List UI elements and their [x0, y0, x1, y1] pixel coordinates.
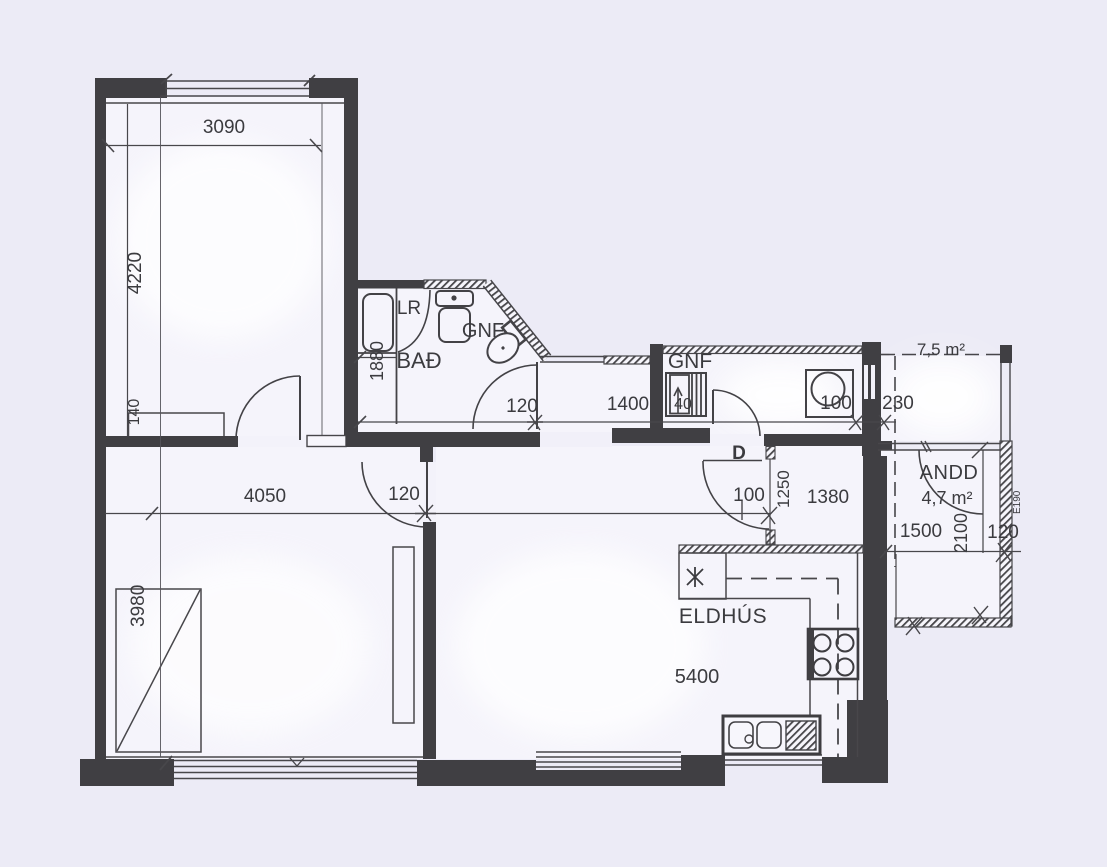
svg-text:120: 120 [987, 522, 1019, 543]
svg-text:ELDHÚS: ELDHÚS [679, 605, 767, 628]
svg-text:4220: 4220 [125, 252, 146, 294]
svg-text:ANDD: ANDD [920, 462, 979, 484]
svg-text:140: 140 [126, 399, 143, 426]
svg-text:5400: 5400 [675, 666, 720, 688]
svg-text:1880: 1880 [367, 341, 387, 381]
svg-text:1400: 1400 [607, 394, 649, 415]
svg-text:GNF: GNF [668, 350, 712, 373]
svg-text:BAÐ: BAÐ [396, 348, 441, 373]
svg-text:230: 230 [882, 393, 914, 414]
svg-text:4,7 m²: 4,7 m² [921, 488, 972, 508]
svg-text:GNF: GNF [462, 320, 504, 342]
svg-text:LR: LR [397, 298, 421, 319]
svg-text:100: 100 [733, 485, 765, 506]
svg-text:E190: E190 [1012, 490, 1023, 514]
svg-text:120: 120 [388, 484, 420, 505]
svg-text:1250: 1250 [774, 470, 793, 508]
svg-text:4050: 4050 [244, 486, 286, 507]
svg-text:40: 40 [674, 396, 692, 413]
svg-text:100: 100 [820, 393, 852, 414]
svg-text:7,5 m²: 7,5 m² [917, 340, 966, 359]
svg-text:1380: 1380 [807, 487, 849, 508]
svg-text:2100: 2100 [951, 513, 971, 553]
svg-text:1500: 1500 [900, 521, 942, 542]
svg-text:3090: 3090 [203, 117, 245, 138]
svg-text:120: 120 [506, 396, 538, 417]
svg-text:D: D [732, 443, 746, 464]
svg-text:3980: 3980 [128, 585, 149, 627]
